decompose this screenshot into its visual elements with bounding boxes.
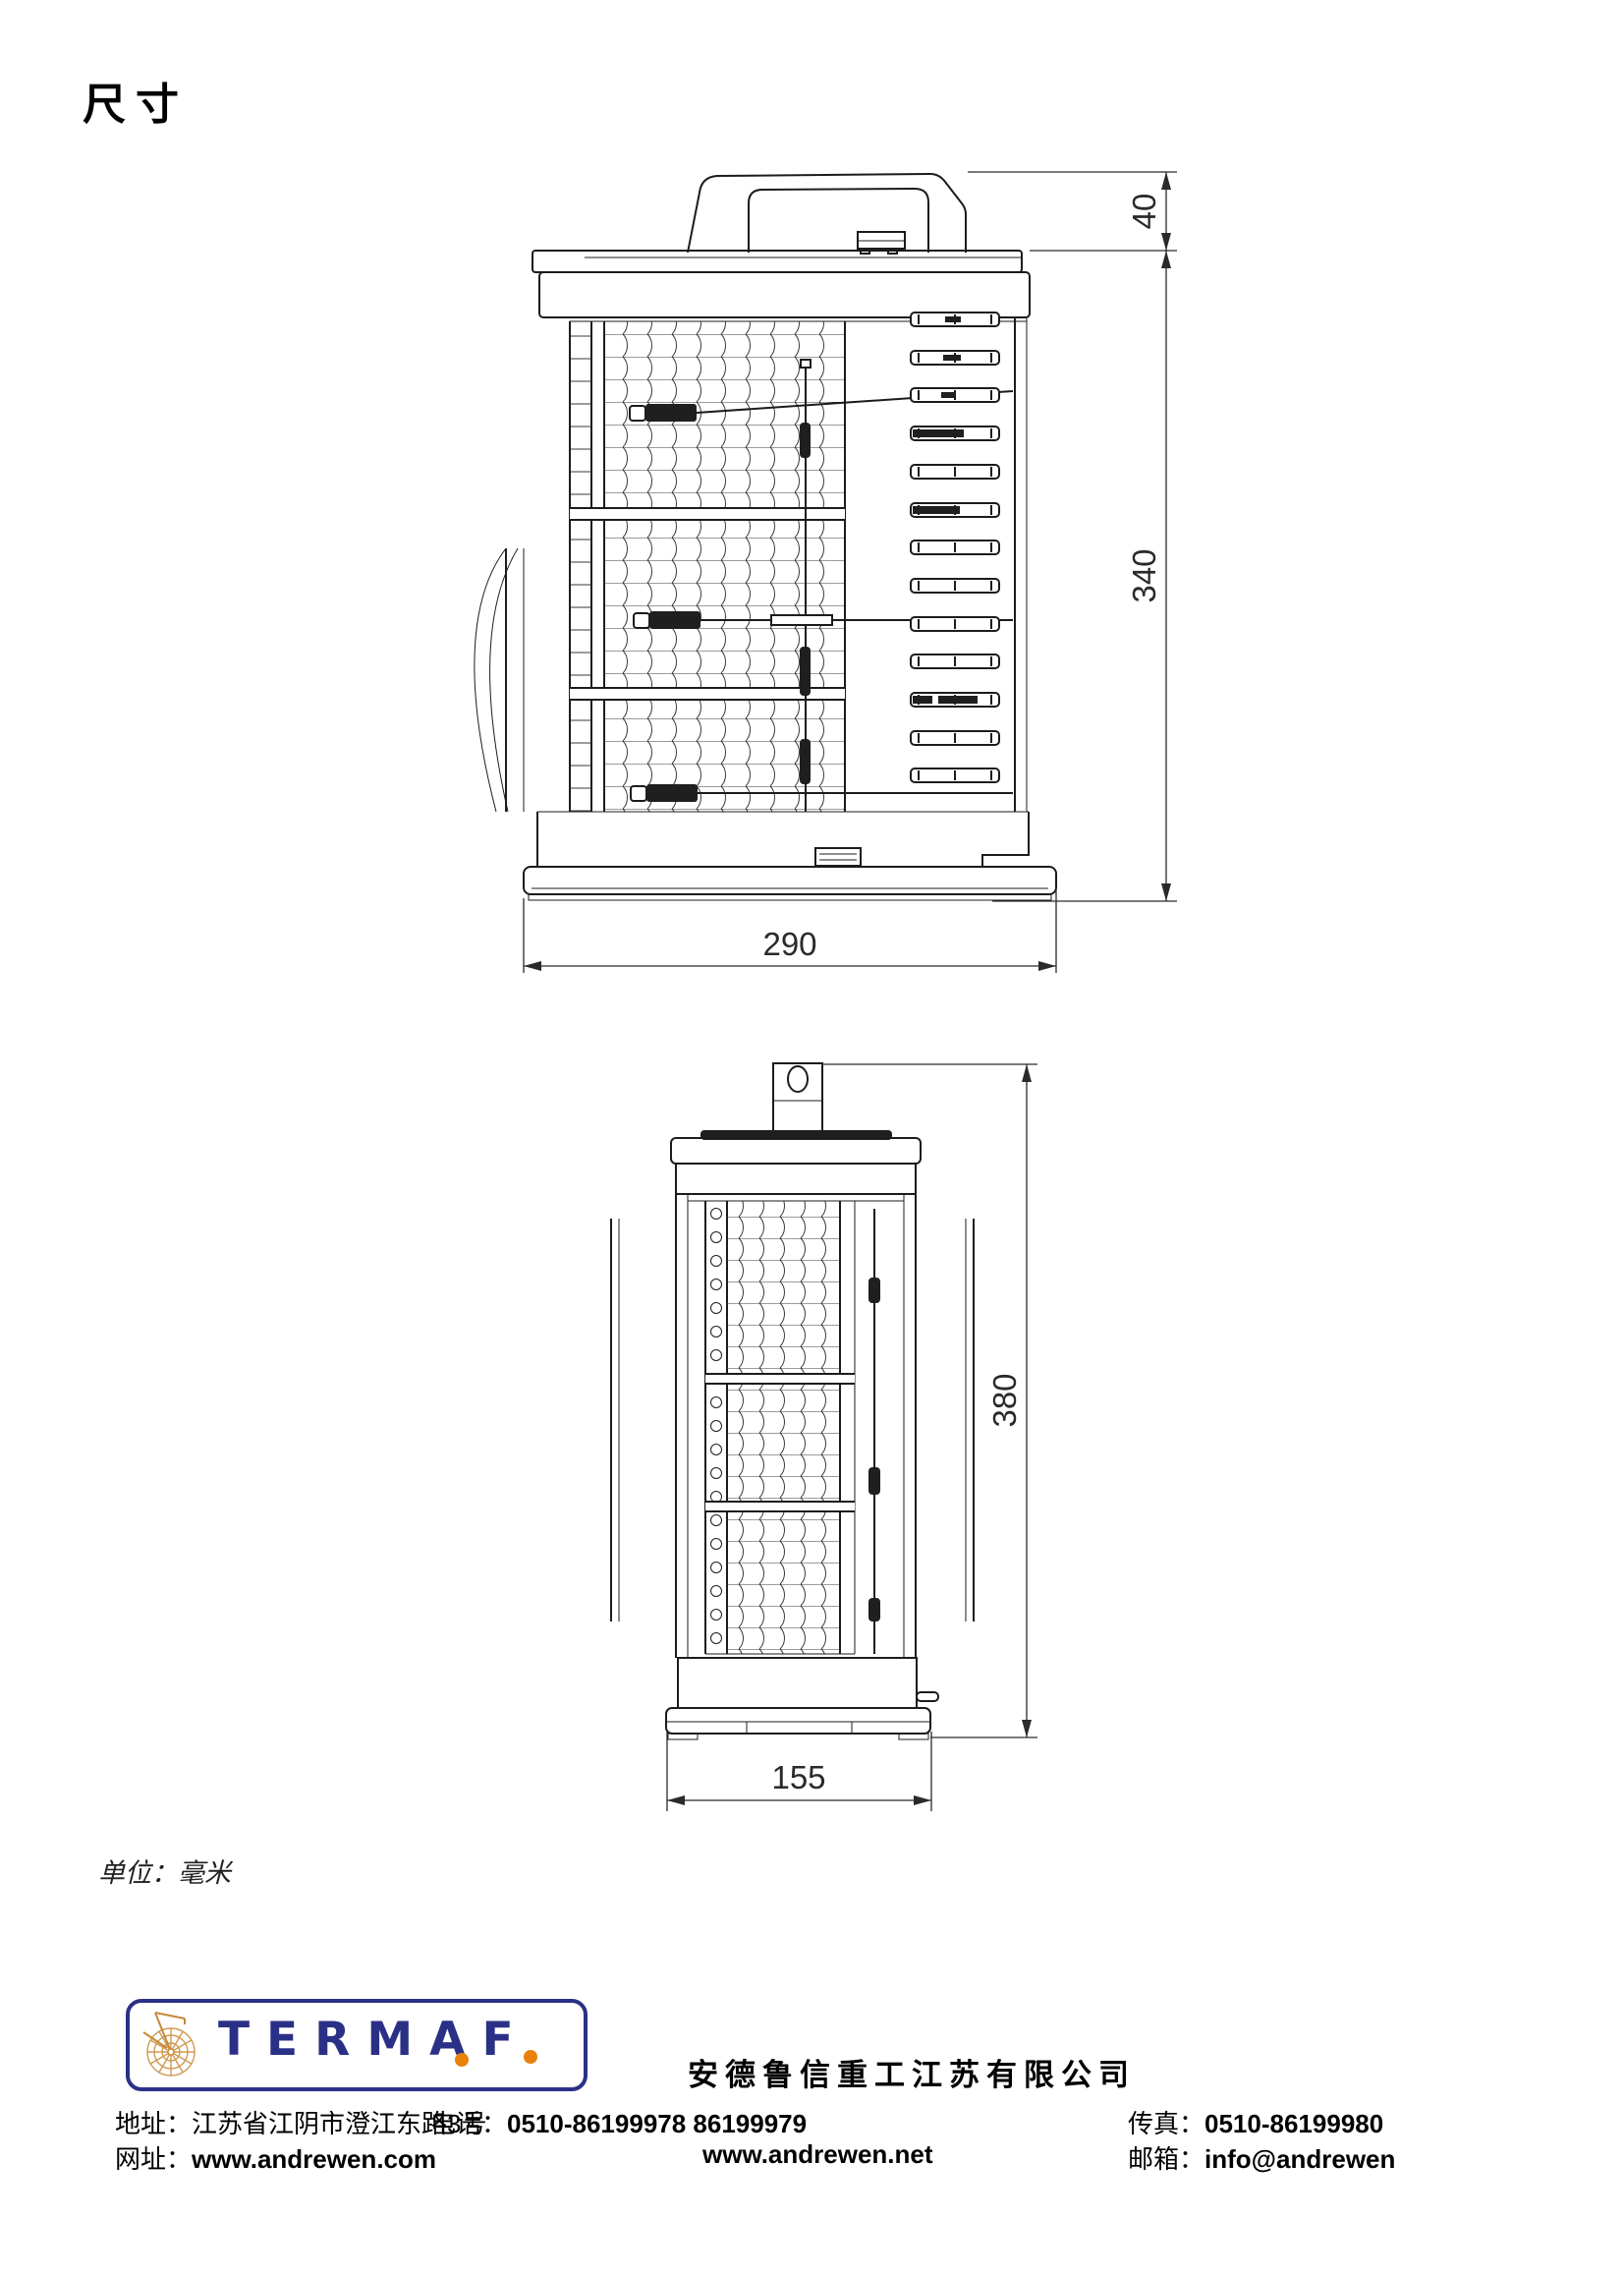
web2-value: www.andrewen.net xyxy=(702,2139,933,2169)
web-label: 网址： xyxy=(115,2144,192,2174)
phone-value: 0510-86199978 86199979 xyxy=(507,2109,807,2138)
mail-label: 邮箱： xyxy=(1128,2144,1204,2174)
footer-website2: www.andrewen.net xyxy=(702,2139,933,2170)
web1-value: www.andrewen.com xyxy=(192,2144,436,2174)
footer-email: 邮箱：info@andrewen xyxy=(1128,2139,1395,2176)
footer-fax: 传真：0510-86199980 xyxy=(1128,2104,1383,2140)
dim-label-155: 155 xyxy=(771,1759,825,1795)
address-label: 地址： xyxy=(115,2109,192,2138)
dim-side-width: 155 xyxy=(667,1732,931,1811)
fax-label: 传真： xyxy=(1128,2109,1204,2138)
side-hanging-tab xyxy=(773,1063,822,1138)
fax-value: 0510-86199980 xyxy=(1204,2109,1383,2138)
front-louvers xyxy=(911,313,999,782)
side-cap xyxy=(671,1130,921,1194)
side-mesh-panel xyxy=(705,1201,880,1654)
dim-label-40: 40 xyxy=(1126,194,1162,230)
dim-label-380: 380 xyxy=(986,1373,1023,1427)
page-title: 尺寸 xyxy=(83,69,189,132)
side-view-drawing: 380 155 xyxy=(447,1022,1135,1838)
mesh-coil-edge xyxy=(711,1209,722,1644)
front-lid xyxy=(532,251,1030,317)
logo-dot-m xyxy=(455,2053,469,2067)
logo-dot-a xyxy=(524,2050,537,2064)
front-base xyxy=(524,812,1056,900)
footer-website: 网址：www.andrewen.com xyxy=(115,2139,436,2176)
dim-label-340: 340 xyxy=(1126,548,1162,602)
side-base xyxy=(666,1658,938,1739)
termaf-fan-icon xyxy=(134,2005,212,2083)
unit-note: 单位：毫米 xyxy=(98,1851,231,1890)
front-handle xyxy=(688,174,966,254)
mail-value: info@andrewen xyxy=(1204,2144,1395,2174)
dim-front-heights: 40 340 xyxy=(968,172,1177,901)
dim-label-290: 290 xyxy=(762,926,816,962)
document-page: 尺寸 xyxy=(0,0,1624,2276)
front-view-drawing: 40 340 290 xyxy=(349,108,1194,983)
phone-label: 电话： xyxy=(430,2109,507,2138)
dim-front-width: 290 xyxy=(524,889,1056,973)
termaf-logo-text: TERMAF xyxy=(218,2013,531,2067)
footer-phone: 电话：0510-86199978 86199979 xyxy=(430,2104,807,2140)
company-name: 安德鲁信重工江苏有限公司 xyxy=(688,2050,1136,2094)
